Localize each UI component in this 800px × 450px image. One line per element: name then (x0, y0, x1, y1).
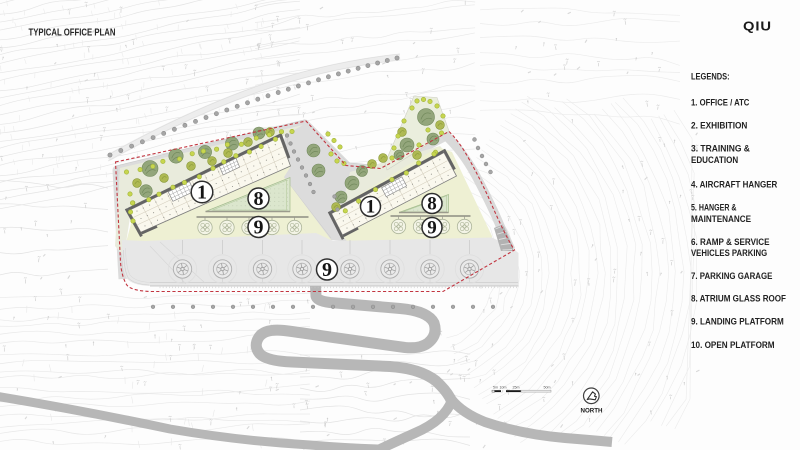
svg-text:5. HANGER &: 5. HANGER & (691, 203, 737, 213)
svg-text:9. LANDING PLATFORM: 9. LANDING PLATFORM (691, 316, 784, 326)
svg-text:10m: 10m (500, 386, 507, 390)
svg-text:2. EXHIBITION: 2. EXHIBITION (691, 121, 747, 131)
svg-text:50m: 50m (544, 386, 551, 390)
svg-text:MAINTENANCE: MAINTENANCE (691, 214, 751, 224)
svg-text:TYPICAL OFFICE PLAN: TYPICAL OFFICE PLAN (29, 28, 116, 39)
svg-text:QIU: QIU (743, 20, 772, 34)
svg-text:9: 9 (427, 218, 437, 239)
svg-text:7. PARKING GARAGE: 7. PARKING GARAGE (691, 271, 772, 281)
svg-text:3. TRAINING &: 3. TRAINING & (691, 143, 750, 153)
svg-text:5m: 5m (493, 386, 498, 390)
svg-text:9: 9 (322, 259, 332, 281)
svg-text:6. RAMP & SERVICE: 6. RAMP & SERVICE (691, 237, 770, 247)
svg-text:NORTH: NORTH (581, 408, 604, 415)
svg-text:25m: 25m (513, 386, 520, 390)
svg-text:EDUCATION: EDUCATION (691, 155, 738, 165)
svg-text:9: 9 (254, 217, 264, 239)
svg-text:8: 8 (427, 194, 437, 215)
svg-text:1: 1 (366, 197, 376, 218)
svg-text:1: 1 (197, 182, 207, 204)
svg-text:10. OPEN PLATFORM: 10. OPEN PLATFORM (691, 340, 775, 350)
svg-text:8: 8 (254, 188, 264, 210)
svg-text:1. OFFICE / ATC: 1. OFFICE / ATC (691, 98, 750, 108)
svg-text:VEHICLES PARKING: VEHICLES PARKING (691, 248, 767, 258)
svg-text:4. AIRCRAFT HANGER: 4. AIRCRAFT HANGER (691, 180, 778, 190)
svg-text:8. ATRIUM GLASS ROOF: 8. ATRIUM GLASS ROOF (691, 293, 786, 303)
svg-text:LEGENDS:: LEGENDS: (691, 72, 730, 82)
